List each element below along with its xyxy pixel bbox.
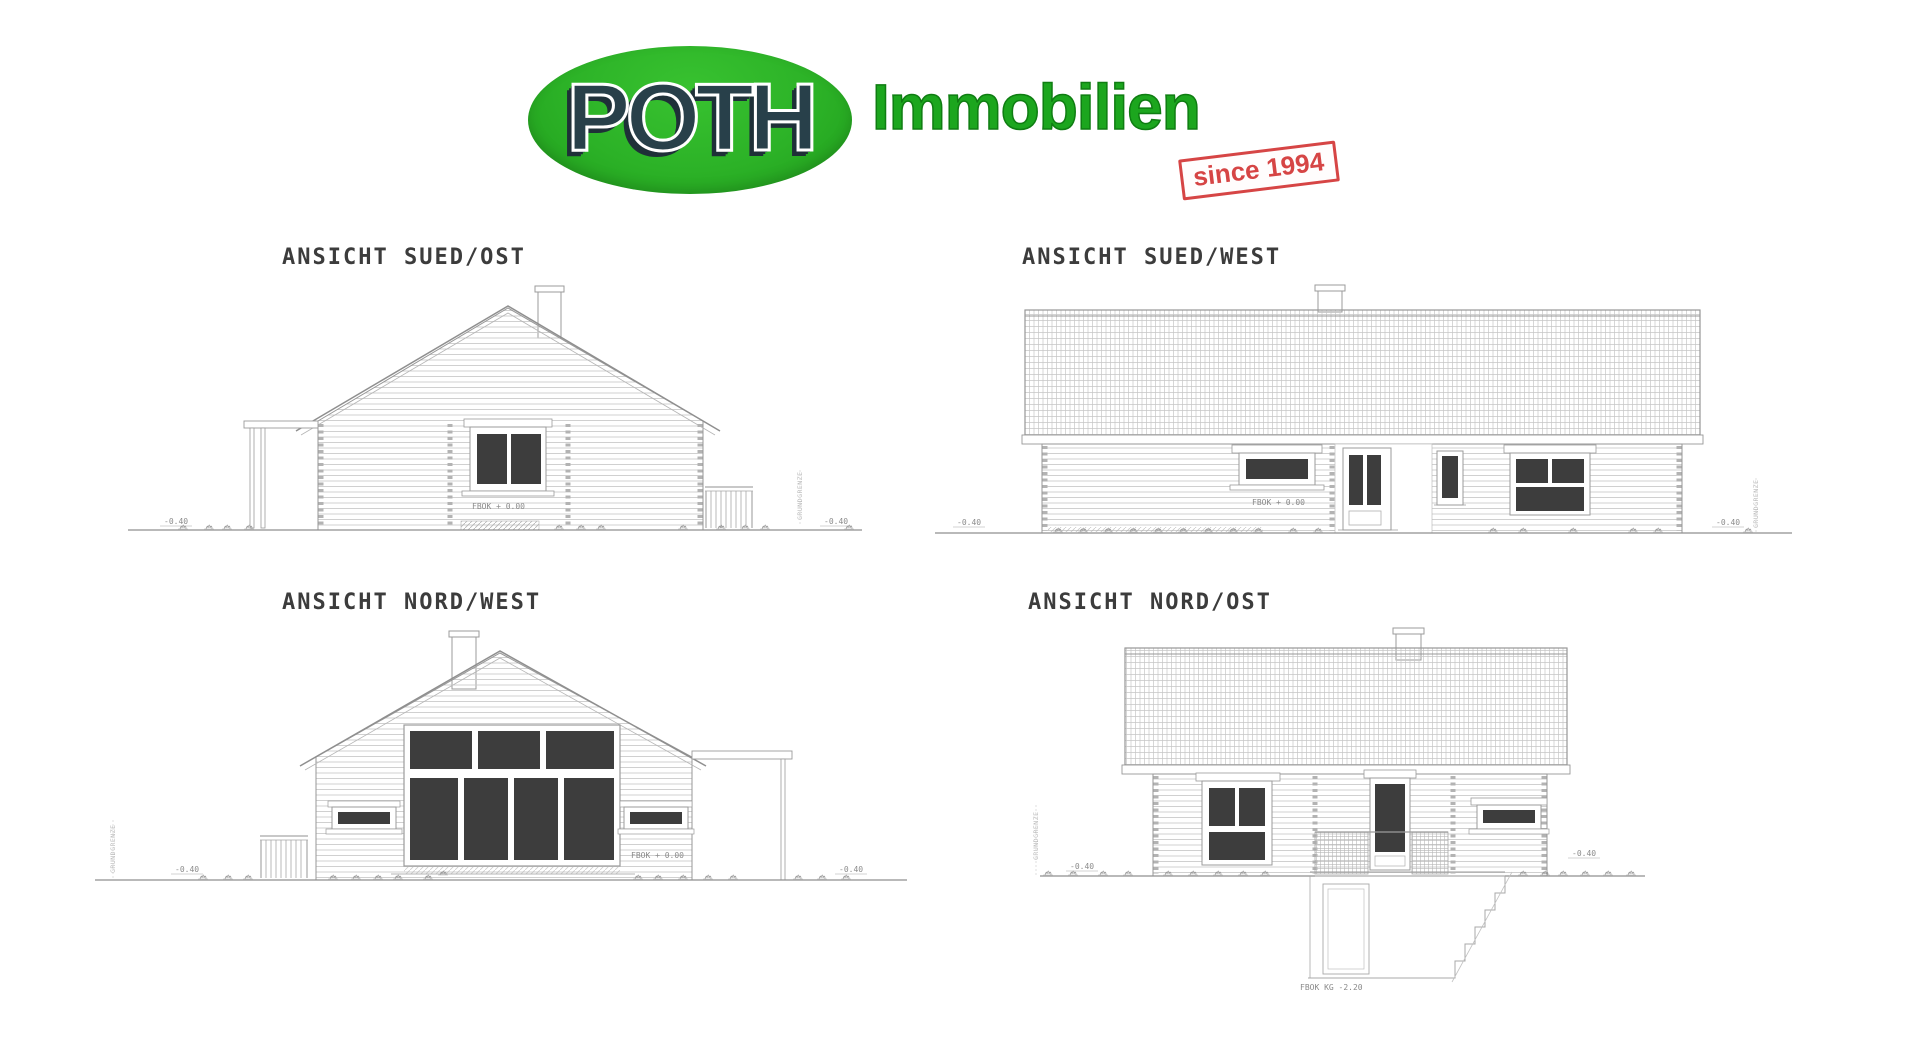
- logo-brand-text: POTH: [567, 70, 814, 166]
- svg-text:-0.40: -0.40: [175, 865, 199, 874]
- window: [462, 419, 554, 496]
- level-marker-right: -0.40: [835, 865, 867, 874]
- since-1994-stamp: since 1994: [1178, 141, 1339, 201]
- entrance-door: [1338, 448, 1398, 530]
- terrace-door: [1364, 770, 1416, 870]
- right-window: [1469, 798, 1549, 834]
- basement-level-label: FBOK KG -2.20: [1300, 983, 1363, 992]
- level-marker-right: -0.40: [1568, 849, 1600, 858]
- terrace-step-hatch: [404, 867, 620, 874]
- elevation-sued-ost: FBOK + 0.00 -0.40 -0.40 GRUNDGRENZE: [120, 278, 870, 548]
- floor-level-label: FBOK + 0.00: [631, 851, 684, 860]
- left-window: [1196, 773, 1280, 865]
- right-window: [618, 801, 694, 834]
- level-marker-right: -0.40: [820, 517, 852, 526]
- logo-suffix-text: Immobilien: [872, 70, 1200, 144]
- narrow-window: [1434, 451, 1466, 505]
- right-window: [1504, 445, 1596, 515]
- title-sued-west: ANSICHT SUED/WEST: [1022, 245, 1281, 270]
- title-nord-ost: ANSICHT NORD/OST: [1028, 590, 1272, 615]
- elevation-sheet: POTH Immobilien since 1994 ANSICHT SUED/…: [0, 0, 1920, 1039]
- elevation-nord-west: FBOK + 0.00 -0.40 -0.40 GRUNDGRENZE: [95, 625, 915, 925]
- elevation-nord-ost: FBOK KG -2.20 -0.40 -0.40 GRUNDGRENZE: [1000, 620, 1820, 1039]
- elevation-sued-west: FBOK + 0.00 -0.40 -0.40 GRUNDGRENZE: [930, 278, 1810, 548]
- small-window: [1230, 445, 1324, 490]
- cellar-entrance: [1308, 872, 1512, 982]
- svg-text:-0.40: -0.40: [1070, 862, 1094, 871]
- entry-step-hatch: [461, 521, 539, 530]
- terrace-railing: [705, 487, 753, 528]
- svg-text:-0.40: -0.40: [1572, 849, 1596, 858]
- logo-ellipse: POTH: [528, 46, 852, 194]
- roof: [1122, 648, 1570, 774]
- roof: [1022, 310, 1703, 444]
- svg-text:-0.40: -0.40: [1716, 518, 1740, 527]
- level-marker-left: -0.40: [1066, 862, 1098, 871]
- chimney: [1315, 285, 1345, 312]
- svg-text:-0.40: -0.40: [824, 517, 848, 526]
- svg-text:-0.40: -0.40: [839, 865, 863, 874]
- floor-level-label: FBOK + 0.00: [472, 502, 525, 511]
- porch: [244, 421, 318, 528]
- porch: [692, 751, 792, 880]
- title-sued-ost: ANSICHT SUED/OST: [282, 245, 526, 270]
- left-window: [326, 801, 402, 834]
- level-marker-left: -0.40: [171, 865, 203, 874]
- level-marker-left: -0.40: [953, 518, 985, 527]
- svg-text:-0.40: -0.40: [957, 518, 981, 527]
- level-marker-left: -0.40: [160, 517, 192, 526]
- floor-level-label: FBOK + 0.00: [1252, 498, 1305, 507]
- fence: [260, 836, 308, 878]
- glazed-wall: [404, 725, 620, 866]
- title-nord-west: ANSICHT NORD/WEST: [282, 590, 541, 615]
- level-marker-right: -0.40: [1712, 518, 1744, 527]
- svg-text:-0.40: -0.40: [164, 517, 188, 526]
